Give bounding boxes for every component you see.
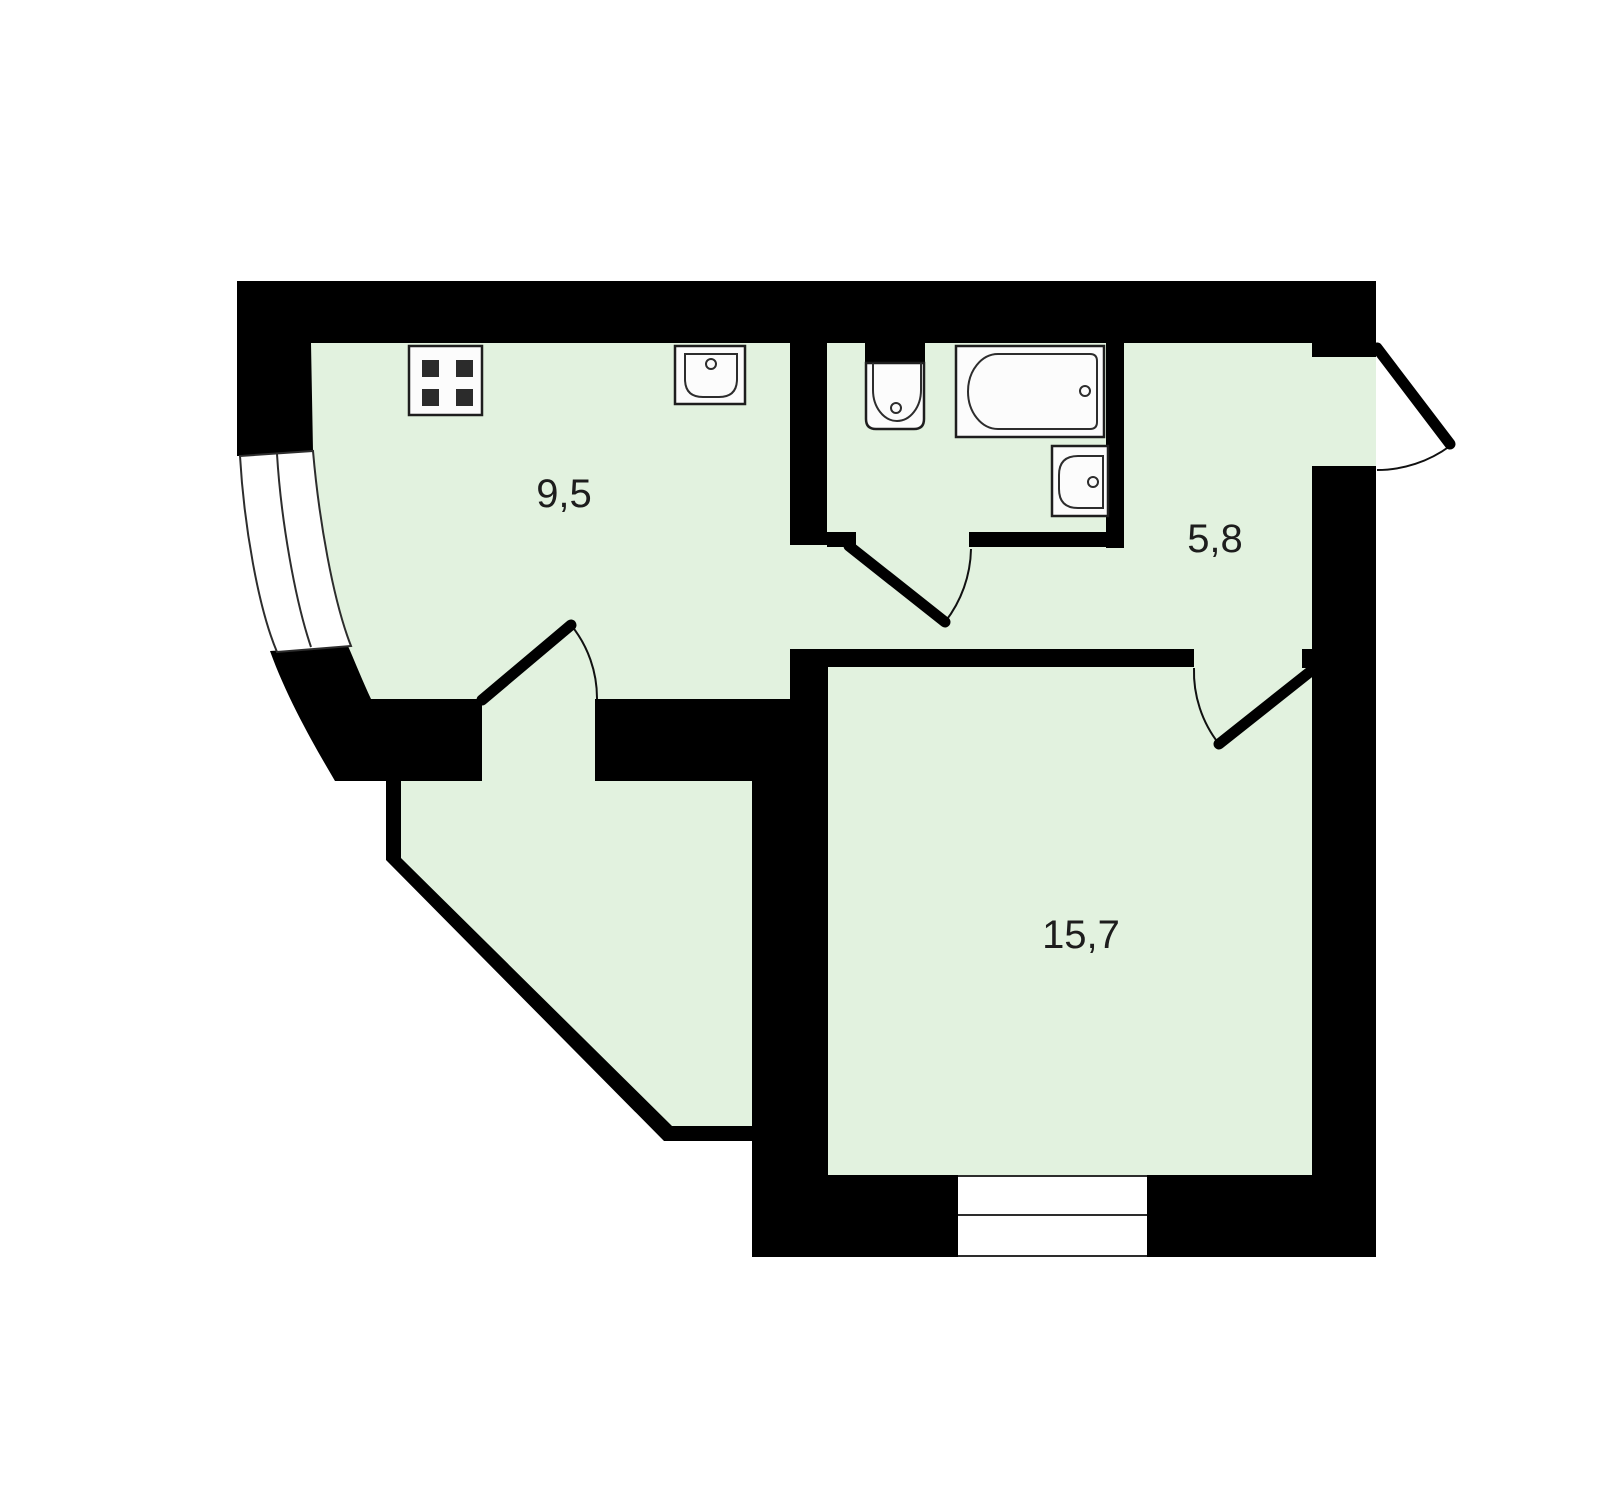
svg-text:15,7: 15,7: [1042, 913, 1120, 957]
svg-text:5,8: 5,8: [1187, 517, 1243, 561]
svg-text:9,5: 9,5: [536, 472, 592, 516]
